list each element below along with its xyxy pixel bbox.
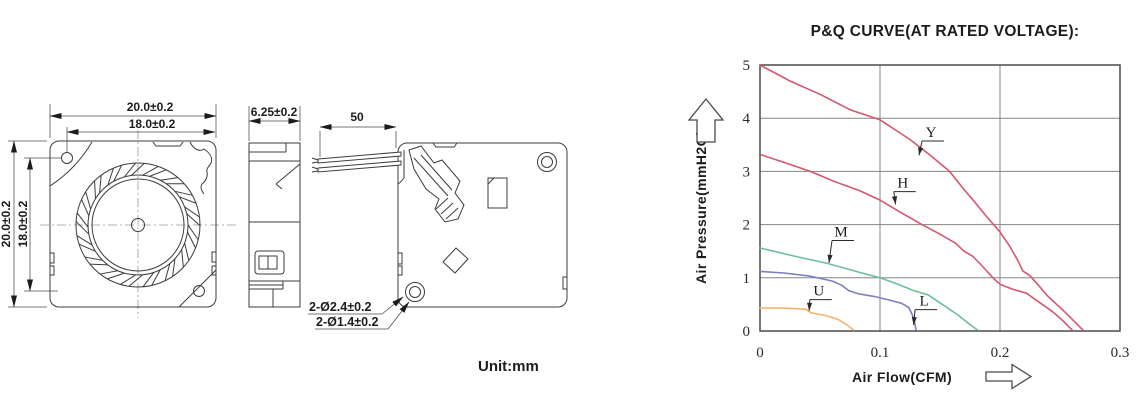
diamond-recess — [443, 248, 468, 273]
plot-area: 01234500.10.20.3YHMLU — [743, 58, 1130, 361]
impeller-blade-edge — [150, 170, 167, 177]
y-tick-label: 2 — [743, 218, 751, 234]
impeller-blade-edge — [129, 275, 143, 287]
chart-title: P&Q CURVE(AT RATED VOLTAGE): — [811, 23, 1080, 40]
y-tick-label: 5 — [743, 58, 751, 74]
x-tick-label: 0.1 — [871, 345, 890, 361]
impeller-blade-edge — [100, 175, 102, 193]
fan-drawing: 20.0±0.2 18.0±0.2 20.0±0.2 18.0±0.2 — [0, 0, 660, 405]
y-tick-label: 1 — [743, 271, 751, 287]
dim-width-inner: 18.0±0.2 — [129, 117, 176, 131]
impeller-blade-edge — [107, 273, 124, 279]
edge-slot — [398, 266, 402, 275]
top-edge-tab — [153, 142, 183, 146]
hole-callouts: 2-Ø2.4±0.2 2-Ø1.4±0.2 — [308, 297, 409, 329]
x-tick-label: 0.3 — [1111, 345, 1130, 361]
curve-H — [760, 154, 1072, 330]
curve-label-U: U — [813, 284, 824, 300]
scroll-tongue-notch — [190, 142, 212, 194]
impeller-blade-edge — [160, 178, 178, 181]
impeller-blade-edge — [76, 222, 89, 235]
curve-label-L: L — [919, 294, 928, 310]
leader-arrowhead — [892, 196, 897, 204]
curve-U — [760, 308, 854, 330]
wire-dimension: 50 — [320, 110, 396, 157]
impeller-blade-edge — [82, 199, 89, 215]
unit-label: Unit:mm — [478, 358, 539, 375]
mounting-hole — [62, 153, 73, 164]
leader-arrowhead — [828, 255, 833, 263]
side-dimensions: 6.25±0.2 — [249, 105, 300, 141]
dim-wire-length: 50 — [350, 110, 364, 124]
x-tick-label: 0.2 — [991, 345, 1010, 361]
mounting-hole — [538, 153, 557, 172]
impeller-blade-edge — [100, 271, 118, 274]
mounting-hole — [406, 283, 425, 302]
curve-L — [760, 271, 916, 330]
curve-M — [760, 248, 977, 330]
edge-slot — [398, 253, 402, 264]
side-view: 6.25±0.2 — [249, 105, 300, 307]
x-axis-label: Air Flow(CFM) — [852, 369, 952, 385]
corner-ear-arc — [50, 142, 92, 186]
dim-height-outer: 20.0±0.2 — [0, 200, 13, 247]
impeller-blade-edge — [182, 249, 184, 267]
top-edge-tab — [433, 143, 457, 147]
curve-label-Y: Y — [926, 125, 937, 141]
curve-Y — [760, 65, 1083, 330]
front-view: 20.0±0.2 18.0±0.2 20.0±0.2 18.0±0.2 — [0, 100, 236, 318]
impeller-blade-edge — [185, 243, 189, 260]
wire-grommet — [409, 146, 464, 222]
y-tick-label: 4 — [743, 111, 751, 127]
lead-wires — [312, 152, 401, 172]
curve-label-H: H — [897, 176, 908, 192]
corner-chamfer — [179, 270, 216, 307]
impeller-blade-edge — [188, 225, 198, 240]
dim-hole-inner: 2-Ø1.4±0.2 — [316, 315, 378, 329]
fan-body-back — [398, 143, 567, 307]
edge-slot — [50, 266, 54, 275]
leader-arrowhead — [807, 303, 812, 311]
fan-body-side — [249, 143, 300, 307]
datasheet-figure: 20.0±0.2 18.0±0.2 20.0±0.2 18.0±0.2 — [0, 0, 1144, 405]
edge-slot — [50, 253, 54, 263]
y-tick-label: 3 — [743, 164, 751, 180]
right-arrow-icon — [986, 365, 1031, 389]
dim-hole-outer: 2-Ø2.4±0.2 — [309, 300, 371, 314]
dim-height-inner: 18.0±0.2 — [16, 200, 30, 247]
impeller-blade-edge — [95, 181, 96, 199]
pq-chart: P&Q CURVE(AT RATED VOLTAGE): Air Pressur… — [660, 0, 1144, 405]
back-view: 50 2-Ø2.4±0.2 2-Ø1.4±0.2 — [308, 110, 567, 329]
edge-slot — [212, 252, 216, 262]
x-tick-label: 0 — [756, 345, 764, 361]
y-axis-label: Air Pressure(mmH2O) — [693, 130, 709, 284]
dim-thickness: 6.25±0.2 — [251, 105, 298, 119]
dim-width-outer: 20.0±0.2 — [127, 100, 174, 114]
curve-label-M: M — [834, 225, 847, 241]
edge-slot — [563, 277, 567, 289]
impeller-blade-edge — [90, 264, 108, 265]
impeller-blade-edge — [86, 192, 91, 209]
y-tick-label: 0 — [743, 324, 751, 340]
label-recess — [488, 178, 507, 208]
inlet-chamfer — [276, 164, 300, 184]
